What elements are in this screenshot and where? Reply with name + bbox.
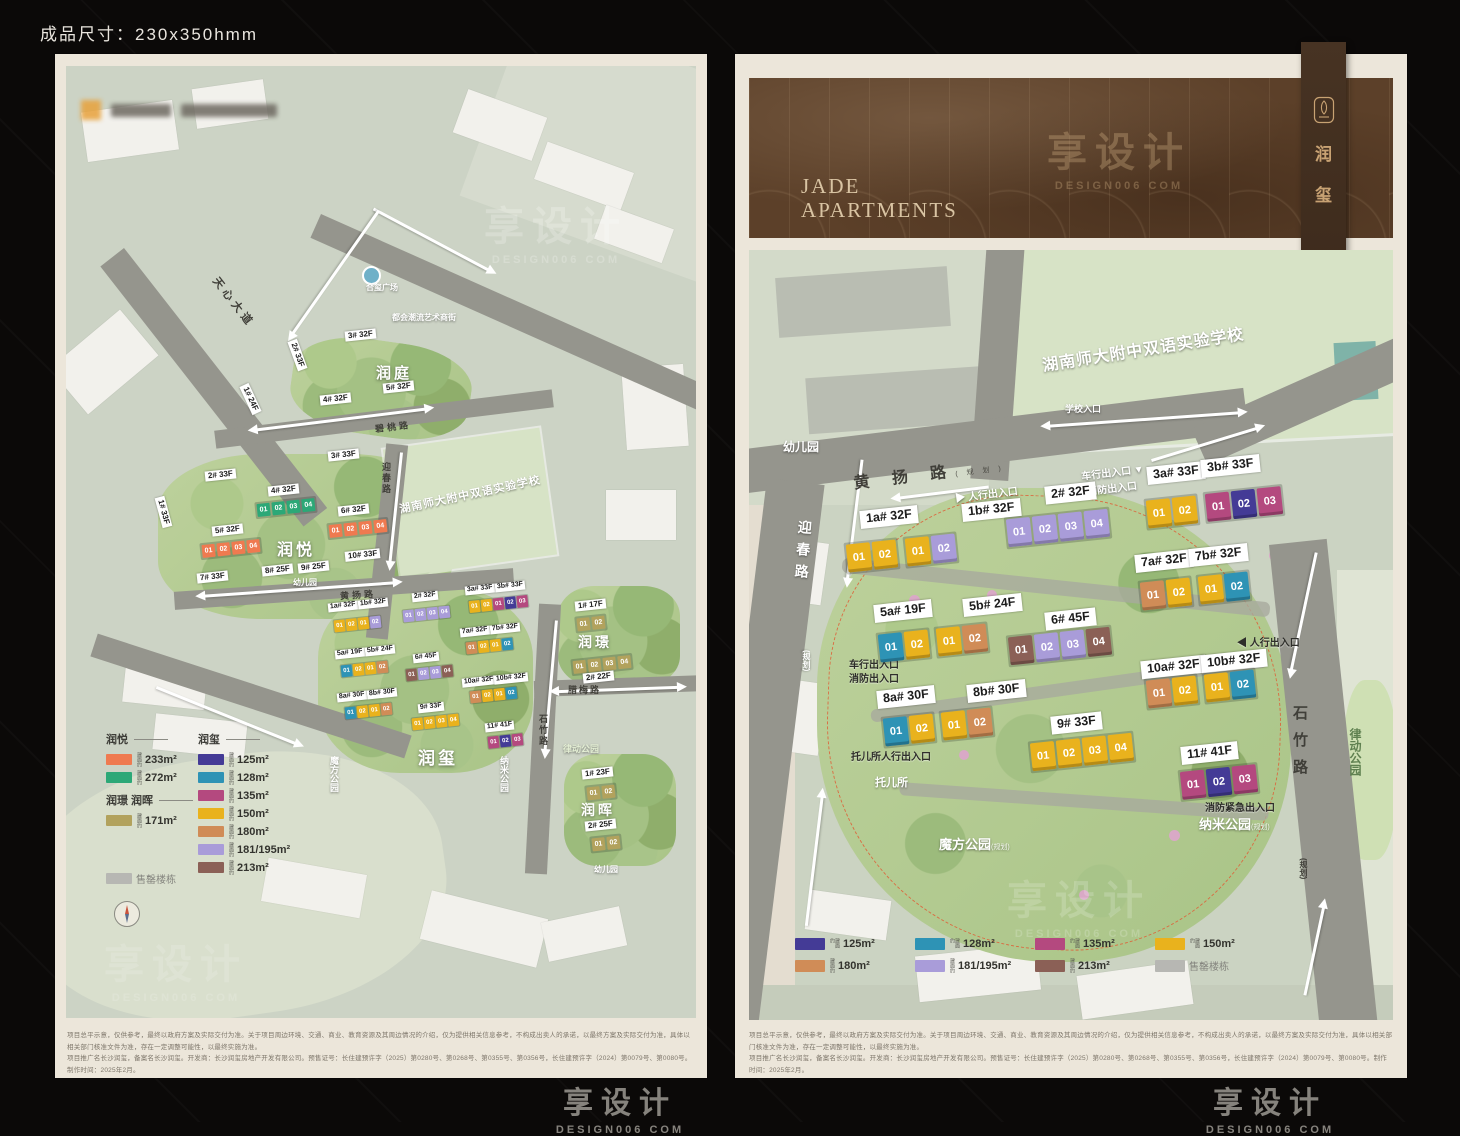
unit-chip: 02 — [345, 618, 357, 631]
unit-chip: 01 — [368, 704, 380, 717]
flower-tree — [959, 750, 969, 760]
unit-chip: 02 — [1231, 489, 1258, 519]
unit-chip: 02 — [872, 539, 899, 569]
unit-chip: 02 — [216, 542, 230, 556]
unit-chip: 01 — [466, 641, 478, 654]
legend-row: 建面约 181/195m² — [915, 958, 1035, 973]
district-name-runjing: 润璟 — [578, 632, 612, 652]
entrance-ped-right: ◀ 人行出入口 — [1237, 634, 1300, 649]
legend-area-prefix: 建面约 — [829, 938, 839, 950]
legend-row: 建面约 135m² — [198, 788, 269, 803]
unit-chip: 02 — [1206, 767, 1233, 797]
legend-row: 建面约 150m² — [1155, 938, 1275, 950]
unit-chip: 01 — [576, 617, 590, 631]
unit-chip: 03 — [435, 715, 447, 728]
unit-row: 0102 — [1195, 569, 1252, 606]
unit-chip: 01 — [487, 736, 499, 749]
unit-chip: 04 — [1083, 509, 1110, 539]
seal-logo-icon — [1313, 96, 1335, 124]
unit-chip: 02 — [1224, 571, 1251, 601]
unit-chip: 02 — [962, 623, 989, 653]
legend-area-prefix: 建面约 — [949, 958, 954, 973]
unit-chip: 02 — [1166, 577, 1193, 607]
entrance-fire-emergency: 消防紧急出入口 — [1205, 799, 1275, 814]
brand-name-char: 润 — [1315, 140, 1332, 165]
legend-area: 181/195m² — [237, 844, 290, 856]
legend-area: 150m² — [237, 808, 269, 820]
unit-chip: 01 — [489, 639, 501, 652]
unit-chip: 03 — [1231, 764, 1258, 794]
unit-chip: 02 — [606, 836, 620, 850]
unit-chip: 02 — [414, 608, 426, 621]
unit-chip: 02 — [909, 713, 936, 743]
district-name-runxi: 润玺 — [418, 744, 458, 769]
kindergarten-label: 幼儿园 — [594, 864, 618, 875]
legend-swatch — [106, 754, 132, 765]
brand-name-char: 玺 — [1315, 181, 1332, 206]
legend-row: 建面约 125m² — [198, 752, 269, 767]
unit-chip: 02 — [967, 707, 994, 737]
brand-header: JADE APARTMENTS 享设计 DESIGN006 COM 润 玺 — [749, 78, 1393, 238]
unit-chip: 01 — [1008, 635, 1035, 665]
unit-chip: 02 — [931, 533, 958, 563]
district-name-runhui: 润晖 — [581, 800, 615, 820]
unit-chip: 03 — [602, 657, 616, 671]
disclaimer-text: 项目总平示意，仅供参考，最终以政府方案及实际交付为准。关于项目周边环境、交通、商… — [749, 1030, 1393, 1077]
unit-chip: 01 — [1140, 580, 1167, 610]
park-label-mofang: 魔方公园(规划) — [939, 834, 1010, 853]
unit-chip: 04 — [438, 606, 450, 619]
unit-chip: 03 — [429, 666, 441, 679]
legend-swatch — [106, 772, 132, 783]
park-label-nami: 纳米公园 — [498, 756, 511, 792]
right-legend: 建面约 125m² 建面约 128m² 建面约 135m² 建面约 150m² … — [795, 938, 1295, 981]
unit-chip: 02 — [356, 705, 368, 718]
unit-row: 0102 — [589, 833, 623, 853]
unit-chip: 01 — [572, 660, 586, 674]
unit-chip: 01 — [1180, 770, 1207, 800]
legend-area: 181/195m² — [958, 960, 1011, 972]
legend-group-title: 润悦 — [106, 731, 168, 747]
city-block — [805, 889, 892, 940]
unit-chip: 04 — [441, 665, 453, 678]
legend-area: 125m² — [237, 754, 269, 766]
legend-swatch — [795, 938, 825, 950]
legend-swatch — [198, 772, 224, 783]
legend-area: 135m² — [237, 790, 269, 802]
city-block — [66, 309, 159, 414]
road-label-yingchun: 迎春路 — [380, 462, 393, 495]
school-gate-label: 学校入口 — [1065, 402, 1101, 415]
legend-row: 建面约 135m² — [1035, 938, 1155, 950]
unit-chip: 03 — [1060, 629, 1087, 659]
logo-text-blur — [111, 104, 171, 117]
unit-chip: 03 — [1082, 735, 1109, 765]
unit-chip: 01 — [334, 619, 346, 632]
legend-row-sold: 售罄楼栋 — [106, 871, 176, 886]
unit-row: 010203 — [1203, 484, 1286, 524]
legend-area: 135m² — [1083, 938, 1115, 950]
right-site-map: 黄 扬 路(规划) 迎春路 (规划) 石竹路 (规划) 湖南师大附中双语实验学校… — [749, 250, 1393, 1020]
unit-row: 0102 — [880, 711, 937, 748]
unit-chip: 01 — [341, 664, 353, 677]
park-label-lvdong: 律动公园 — [563, 742, 599, 755]
legend-swatch — [198, 790, 224, 801]
unit-chip: 02 — [904, 629, 931, 659]
left-site-map: 天心大道 碧桃路 黄扬路 迎春路 石竹路 腊梅路 合玺广场 都会潮流艺术商街 3… — [66, 66, 696, 1018]
unit-row: 0102 — [843, 537, 900, 574]
unit-chip: 04 — [617, 655, 631, 669]
kindergarten-label: 幼儿园 — [293, 577, 317, 588]
road-label-lamei: 腊梅路 — [568, 683, 601, 696]
legend-swatch — [106, 815, 132, 826]
legend-swatch — [198, 808, 224, 819]
nursery-label: 托儿所 — [875, 774, 908, 790]
unit-chip: 02 — [591, 616, 605, 630]
unit-chip: 01 — [941, 710, 968, 740]
legend-area: 272m² — [145, 772, 177, 784]
unit-chip: 01 — [470, 690, 482, 703]
unit-chip: 04 — [246, 539, 260, 553]
unit-row: 0102 — [902, 531, 959, 568]
legend-row: 建面约 181/195m² — [198, 842, 290, 857]
legend-sold-label: 售罄楼栋 — [1189, 958, 1229, 973]
unit-chip: 02 — [271, 501, 285, 515]
unit-chip: 02 — [480, 599, 492, 612]
legend-area: 171m² — [145, 815, 177, 827]
legend-swatch — [915, 960, 945, 972]
road-label-shizhu: 石竹路 — [537, 714, 550, 747]
city-block — [606, 490, 676, 540]
disclaimer-text: 项目总平示意，仅供参考，最终以政府方案及实际交付为准。关于项目周边环境、交通、商… — [67, 1030, 695, 1077]
unit-chip: 03 — [1058, 511, 1085, 541]
unit-chip: 04 — [1085, 627, 1112, 657]
unit-chip: 01 — [883, 716, 910, 746]
unit-chip: 01 — [591, 837, 605, 851]
unit-chip: 02 — [369, 616, 381, 629]
unit-row: 010203 — [486, 732, 524, 750]
legend-row-sold: 售罄楼栋 — [1155, 958, 1275, 973]
unit-chip: 02 — [501, 638, 513, 651]
unit-chip: 01 — [1205, 492, 1232, 522]
logo-text-blur — [181, 104, 277, 117]
unit-chip: 02 — [1032, 514, 1059, 544]
district-name-runyue: 润悦 — [277, 536, 315, 560]
unit-chip: 02 — [1230, 669, 1257, 699]
unit-chip: 01 — [493, 688, 505, 701]
legend-row: 建面约 180m² — [795, 958, 915, 973]
legend-area-prefix: 建面约 — [228, 842, 233, 857]
legend-swatch — [106, 873, 132, 884]
legend-area: 128m² — [963, 938, 995, 950]
legend-swatch — [915, 938, 945, 950]
unit-chip: 01 — [878, 632, 905, 662]
flower-tree — [1079, 890, 1089, 900]
legend-area-prefix: 建面约 — [829, 958, 834, 973]
unit-chip: 01 — [846, 542, 873, 572]
unit-chip: 02 — [343, 522, 357, 536]
legend-area-prefix: 建面约 — [1069, 938, 1079, 950]
unit-chip: 01 — [256, 503, 270, 517]
unit-chip: 02 — [376, 661, 388, 674]
road-label-shizhu-plan: (规划) — [1298, 858, 1309, 879]
legend-row: 建面约 128m² — [198, 770, 269, 785]
flower-tree — [1169, 830, 1180, 841]
logo-mark — [81, 100, 101, 120]
unit-row: 0102 — [875, 627, 932, 664]
legend-swatch — [198, 862, 224, 873]
unit-row: 0102 — [938, 705, 995, 742]
unit-chip: 02 — [477, 640, 489, 653]
legend-row: 建面约 213m² — [1035, 958, 1155, 973]
park-label-nami: 纳米公园(规划) — [1199, 814, 1270, 833]
left-poster: 天心大道 碧桃路 黄扬路 迎春路 石竹路 腊梅路 合玺广场 都会潮流艺术商街 3… — [55, 54, 707, 1078]
road-label-yingchun-plan: (规划) — [801, 650, 812, 671]
road-label-shizhu: 石竹路 — [1289, 705, 1310, 786]
print-size-label: 成品尺寸：230x350hmm — [40, 20, 258, 45]
unit-chip: 02 — [417, 667, 429, 680]
city-block — [541, 906, 628, 962]
right-poster: JADE APARTMENTS 享设计 DESIGN006 COM 润 玺 — [735, 54, 1407, 1078]
developer-logo-blurred — [81, 100, 277, 120]
unit-chip: 01 — [406, 668, 418, 681]
legend-swatch — [795, 960, 825, 972]
legend-area-prefix: 建面约 — [228, 824, 233, 839]
street-label: 都会潮流艺术商街 — [392, 312, 456, 323]
unit-chip: 01 — [201, 544, 215, 558]
neighbor-building — [775, 266, 951, 338]
legend-area: 150m² — [1203, 938, 1235, 950]
legend-swatch — [1155, 960, 1185, 972]
legend-area-prefix: 建面约 — [136, 813, 141, 828]
unit-chip: 02 — [1056, 738, 1083, 768]
unit-chip: 02 — [1034, 632, 1061, 662]
entrance-nursery-ped: 托儿所人行出入口 — [851, 748, 931, 763]
legend-area-prefix: 建面约 — [949, 938, 959, 950]
unit-chip: 01 — [328, 524, 342, 538]
legend-area-prefix: 建面约 — [228, 770, 233, 785]
unit-chip: 01 — [492, 597, 504, 610]
legend-area: 213m² — [1078, 960, 1110, 972]
unit-chip: 03 — [286, 500, 300, 514]
legend-swatch — [198, 826, 224, 837]
legend-area: 128m² — [237, 772, 269, 784]
legend-area-prefix: 建面约 — [228, 788, 233, 803]
unit-chip: 01 — [586, 786, 600, 800]
legend-swatch — [198, 754, 224, 765]
legend-area: 233m² — [145, 754, 177, 766]
unit-row: 0102 — [574, 613, 608, 633]
unit-chip: 02 — [504, 596, 516, 609]
district-name-runting: 润庭 — [376, 362, 412, 383]
legend-area-prefix: 建面约 — [1069, 958, 1074, 973]
unit-chip: 04 — [373, 519, 387, 533]
unit-chip: 01 — [345, 706, 357, 719]
legend-swatch — [1035, 938, 1065, 950]
watermark: 享设计 DESIGN006 COM — [1130, 1078, 1410, 1136]
legend-area-prefix: 建面约 — [1189, 938, 1199, 950]
unit-chip: 02 — [505, 687, 517, 700]
unit-row: 0102 — [1137, 575, 1194, 612]
unit-chip: 03 — [511, 733, 523, 746]
unit-chip: 01 — [1146, 498, 1173, 528]
unit-chip: 03 — [358, 521, 372, 535]
legend-sold-label: 售罄楼栋 — [136, 871, 176, 886]
unit-chip: 01 — [1204, 672, 1231, 702]
legend-area-prefix: 建面约 — [136, 752, 141, 767]
building-label: 3a# 33F — [465, 583, 495, 595]
kindergarten-label: 幼儿园 — [783, 438, 819, 455]
legend-row: 建面约 125m² — [795, 938, 915, 950]
unit-chip: 02 — [499, 734, 511, 747]
road-label-tianxin: 天心大道 — [209, 273, 259, 330]
legend-swatch — [1035, 960, 1065, 972]
legend-row: 建面约 213m² — [198, 860, 269, 875]
legend-row: 建面约 180m² — [198, 824, 269, 839]
entrance-fire-left: 消防出入口 — [849, 670, 899, 685]
unit-chip: 02 — [601, 785, 615, 799]
unit-chip: 01 — [936, 626, 963, 656]
legend-area-prefix: 建面约 — [228, 860, 233, 875]
unit-chip: 04 — [1107, 733, 1134, 763]
legend-area: 180m² — [838, 960, 870, 972]
unit-chip: 01 — [403, 609, 415, 622]
unit-chip: 03 — [426, 607, 438, 620]
unit-chip: 03 — [1256, 486, 1283, 516]
unit-chip: 01 — [905, 536, 932, 566]
unit-chip: 02 — [423, 716, 435, 729]
unit-chip: 01 — [1146, 678, 1173, 708]
unit-chip: 01 — [1006, 517, 1033, 547]
building-label: 3b# 33F — [495, 580, 526, 592]
legend-row: 建面约 128m² — [915, 938, 1035, 950]
unit-chip: 03 — [231, 541, 245, 555]
unit-row: 0102 — [1201, 667, 1258, 704]
unit-chip: 01 — [364, 662, 376, 675]
design-preview-page: { "page": { "size_label": "成品尺寸：230x350h… — [0, 0, 1460, 1122]
legend-row: 建面约 233m² — [106, 752, 177, 767]
compass-icon — [114, 901, 140, 927]
unit-chip: 01 — [469, 600, 481, 613]
unit-row: 0102 — [1143, 493, 1200, 530]
unit-chip: 01 — [1198, 574, 1225, 604]
watermark: 享设计 DESIGN006 COM — [480, 1078, 760, 1136]
legend-area: 213m² — [237, 862, 269, 874]
unit-chip: 02 — [1172, 675, 1199, 705]
legend-row: 建面约 272m² — [106, 770, 177, 785]
legend-group-title: 润玺 — [198, 731, 260, 747]
unit-chip: 02 — [1172, 495, 1199, 525]
unit-chip: 02 — [352, 663, 364, 676]
legend-area-prefix: 建面约 — [228, 752, 233, 767]
brand-title-en: JADE APARTMENTS — [801, 174, 958, 222]
legend-area: 180m² — [237, 826, 269, 838]
legend-area: 125m² — [843, 938, 875, 950]
unit-chip: 02 — [587, 658, 601, 672]
park-label-lvdong: 律动公园 — [1347, 728, 1364, 776]
legend-row: 建面约 171m² — [106, 813, 177, 828]
unit-chip: 01 — [357, 617, 369, 630]
outside-south — [749, 985, 1393, 1020]
unit-chip: 04 — [447, 714, 459, 727]
legend-swatch — [1155, 938, 1185, 950]
plaza-label: 合玺广场 — [366, 282, 398, 293]
unit-row: 0102 — [933, 621, 990, 658]
unit-chip: 03 — [516, 595, 528, 608]
unit-chip: 01 — [1030, 741, 1057, 771]
city-block — [420, 890, 549, 968]
legend-area-prefix: 建面约 — [136, 770, 141, 785]
unit-chip: 02 — [481, 689, 493, 702]
park-label-mofang: 魔方公园 — [328, 756, 341, 792]
legend-swatch — [198, 844, 224, 855]
unit-row: 0102 — [1143, 673, 1200, 710]
unit-chip: 02 — [380, 703, 392, 716]
legend-area-prefix: 建面约 — [228, 806, 233, 821]
unit-chip: 01 — [412, 717, 424, 730]
unit-chip: 04 — [301, 498, 315, 512]
legend-group-title: 润璟 润晖 — [106, 792, 193, 808]
building-label: 3a# 33F — [1146, 461, 1205, 485]
legend-row: 建面约 150m² — [198, 806, 269, 821]
